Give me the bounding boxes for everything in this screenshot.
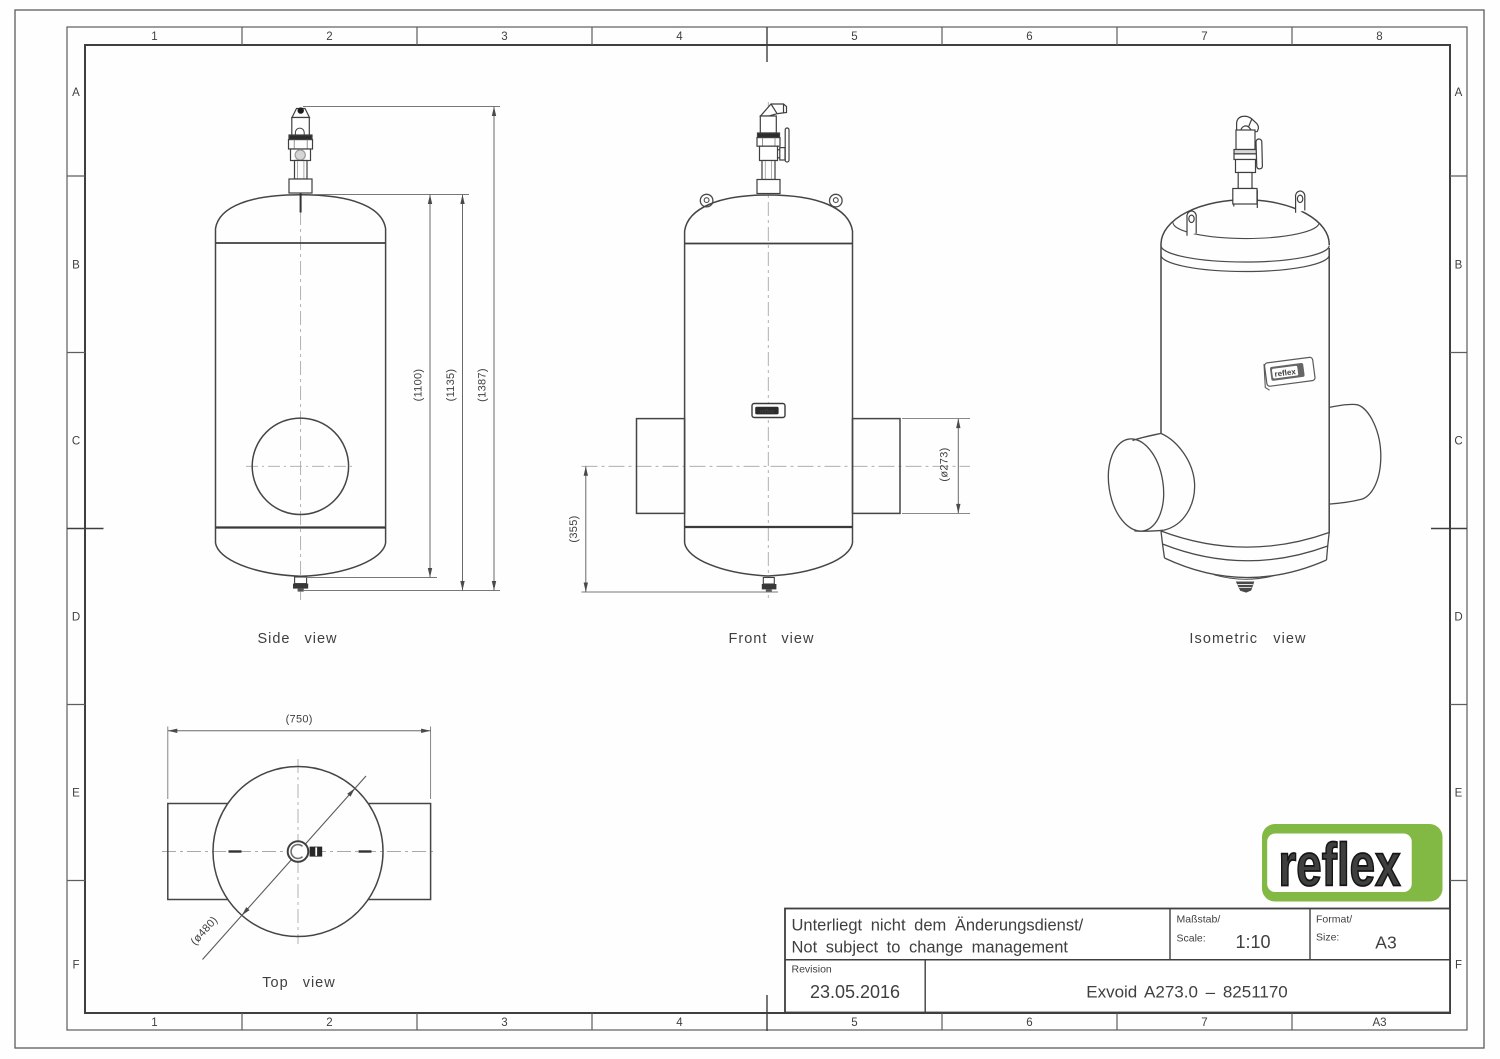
- svg-text:Size:: Size:: [1316, 932, 1339, 944]
- svg-text:1: 1: [151, 31, 157, 43]
- svg-text:B: B: [1455, 260, 1463, 272]
- svg-text:Maßstab/: Maßstab/: [1177, 914, 1221, 926]
- svg-text:(ø273): (ø273): [939, 447, 951, 481]
- svg-text:Unterliegt nicht dem Änderungs: Unterliegt nicht dem Änderungsdienst/: [792, 917, 1084, 935]
- svg-text:(1100): (1100): [413, 369, 425, 402]
- svg-text:4: 4: [676, 31, 683, 43]
- svg-text:1: 1: [151, 1017, 157, 1029]
- svg-text:Revision: Revision: [792, 964, 832, 976]
- svg-text:2: 2: [326, 1017, 332, 1029]
- svg-text:A: A: [72, 87, 80, 99]
- svg-text:8: 8: [1376, 31, 1382, 43]
- svg-text:Front view: Front view: [729, 631, 815, 647]
- svg-text:7: 7: [1201, 31, 1207, 43]
- svg-text:reflex: reflex: [1279, 832, 1401, 899]
- svg-text:(1387): (1387): [476, 368, 488, 402]
- svg-text:Scale:: Scale:: [1177, 933, 1206, 945]
- svg-text:(750): (750): [286, 714, 313, 726]
- svg-text:3: 3: [501, 31, 507, 43]
- svg-text:Top view: Top view: [262, 975, 335, 991]
- svg-text:F: F: [1455, 960, 1462, 972]
- svg-text:6: 6: [1026, 1017, 1032, 1029]
- svg-text:3: 3: [501, 1017, 507, 1029]
- svg-text:D: D: [72, 612, 80, 624]
- svg-text:7: 7: [1201, 1017, 1207, 1029]
- svg-text:(1135): (1135): [445, 369, 457, 402]
- svg-text:D: D: [1454, 612, 1462, 624]
- svg-text:6: 6: [1026, 31, 1032, 43]
- svg-text:E: E: [1455, 788, 1463, 800]
- svg-text:A: A: [1455, 87, 1463, 99]
- svg-text:Format/: Format/: [1316, 914, 1352, 926]
- svg-text:F: F: [72, 960, 79, 972]
- svg-text:Isometric view: Isometric view: [1189, 631, 1306, 647]
- svg-text:Not subject to change manageme: Not subject to change management: [792, 939, 1069, 957]
- svg-text:C: C: [1454, 436, 1462, 448]
- svg-text:C: C: [72, 436, 80, 448]
- svg-text:5: 5: [851, 1017, 857, 1029]
- svg-text:2: 2: [326, 31, 332, 43]
- svg-text:23.05.2016: 23.05.2016: [810, 982, 900, 1002]
- svg-text:Side view: Side view: [257, 631, 337, 647]
- svg-text:5: 5: [851, 31, 857, 43]
- svg-text:(355): (355): [568, 515, 580, 542]
- svg-text:B: B: [72, 260, 80, 272]
- svg-text:reflex: reflex: [760, 409, 776, 415]
- svg-text:4: 4: [676, 1017, 683, 1029]
- svg-text:E: E: [72, 788, 80, 800]
- svg-text:Exvoid A273.0 – 8251170: Exvoid A273.0 – 8251170: [1086, 983, 1288, 1002]
- svg-text:A3: A3: [1375, 933, 1396, 953]
- svg-text:1:10: 1:10: [1235, 932, 1270, 952]
- svg-text:A3: A3: [1372, 1017, 1386, 1029]
